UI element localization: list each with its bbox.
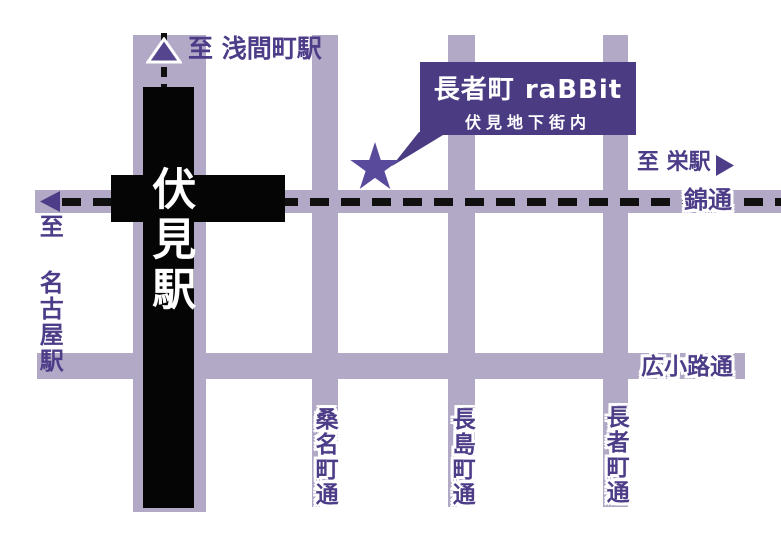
direction-west-label: 至 名古屋駅 — [36, 214, 61, 374]
triangle-up-icon — [146, 37, 182, 64]
direction-north-label: 至 浅間町駅 — [188, 36, 322, 62]
destination-location: 伏見地下街内 — [420, 109, 636, 133]
star-icon — [348, 142, 402, 192]
station-bar-horizontal — [111, 175, 285, 222]
street-nishiki-label: 錦通 — [684, 188, 732, 213]
street-nagashimacho-label: 長島町通 — [449, 407, 473, 507]
access-map: 伏見駅 至 浅間町駅 至 名古屋駅 至 栄駅 長者町 raBBit 伏見地下街内 — [0, 0, 781, 544]
direction-east-label: 至 栄駅 — [637, 151, 711, 174]
street-kuwanacho-label: 桑名町通 — [312, 407, 336, 507]
destination-callout: 長者町 raBBit 伏見地下街内 — [420, 62, 636, 135]
destination-name: 長者町 raBBit — [420, 69, 636, 106]
arrow-left-icon — [38, 190, 62, 213]
street-chojamacho-label: 長者町通 — [603, 405, 627, 505]
arrow-right-icon — [714, 154, 736, 177]
street-hirokoji-label: 広小路通 — [641, 355, 733, 379]
station-label: 伏見駅 — [146, 166, 192, 316]
